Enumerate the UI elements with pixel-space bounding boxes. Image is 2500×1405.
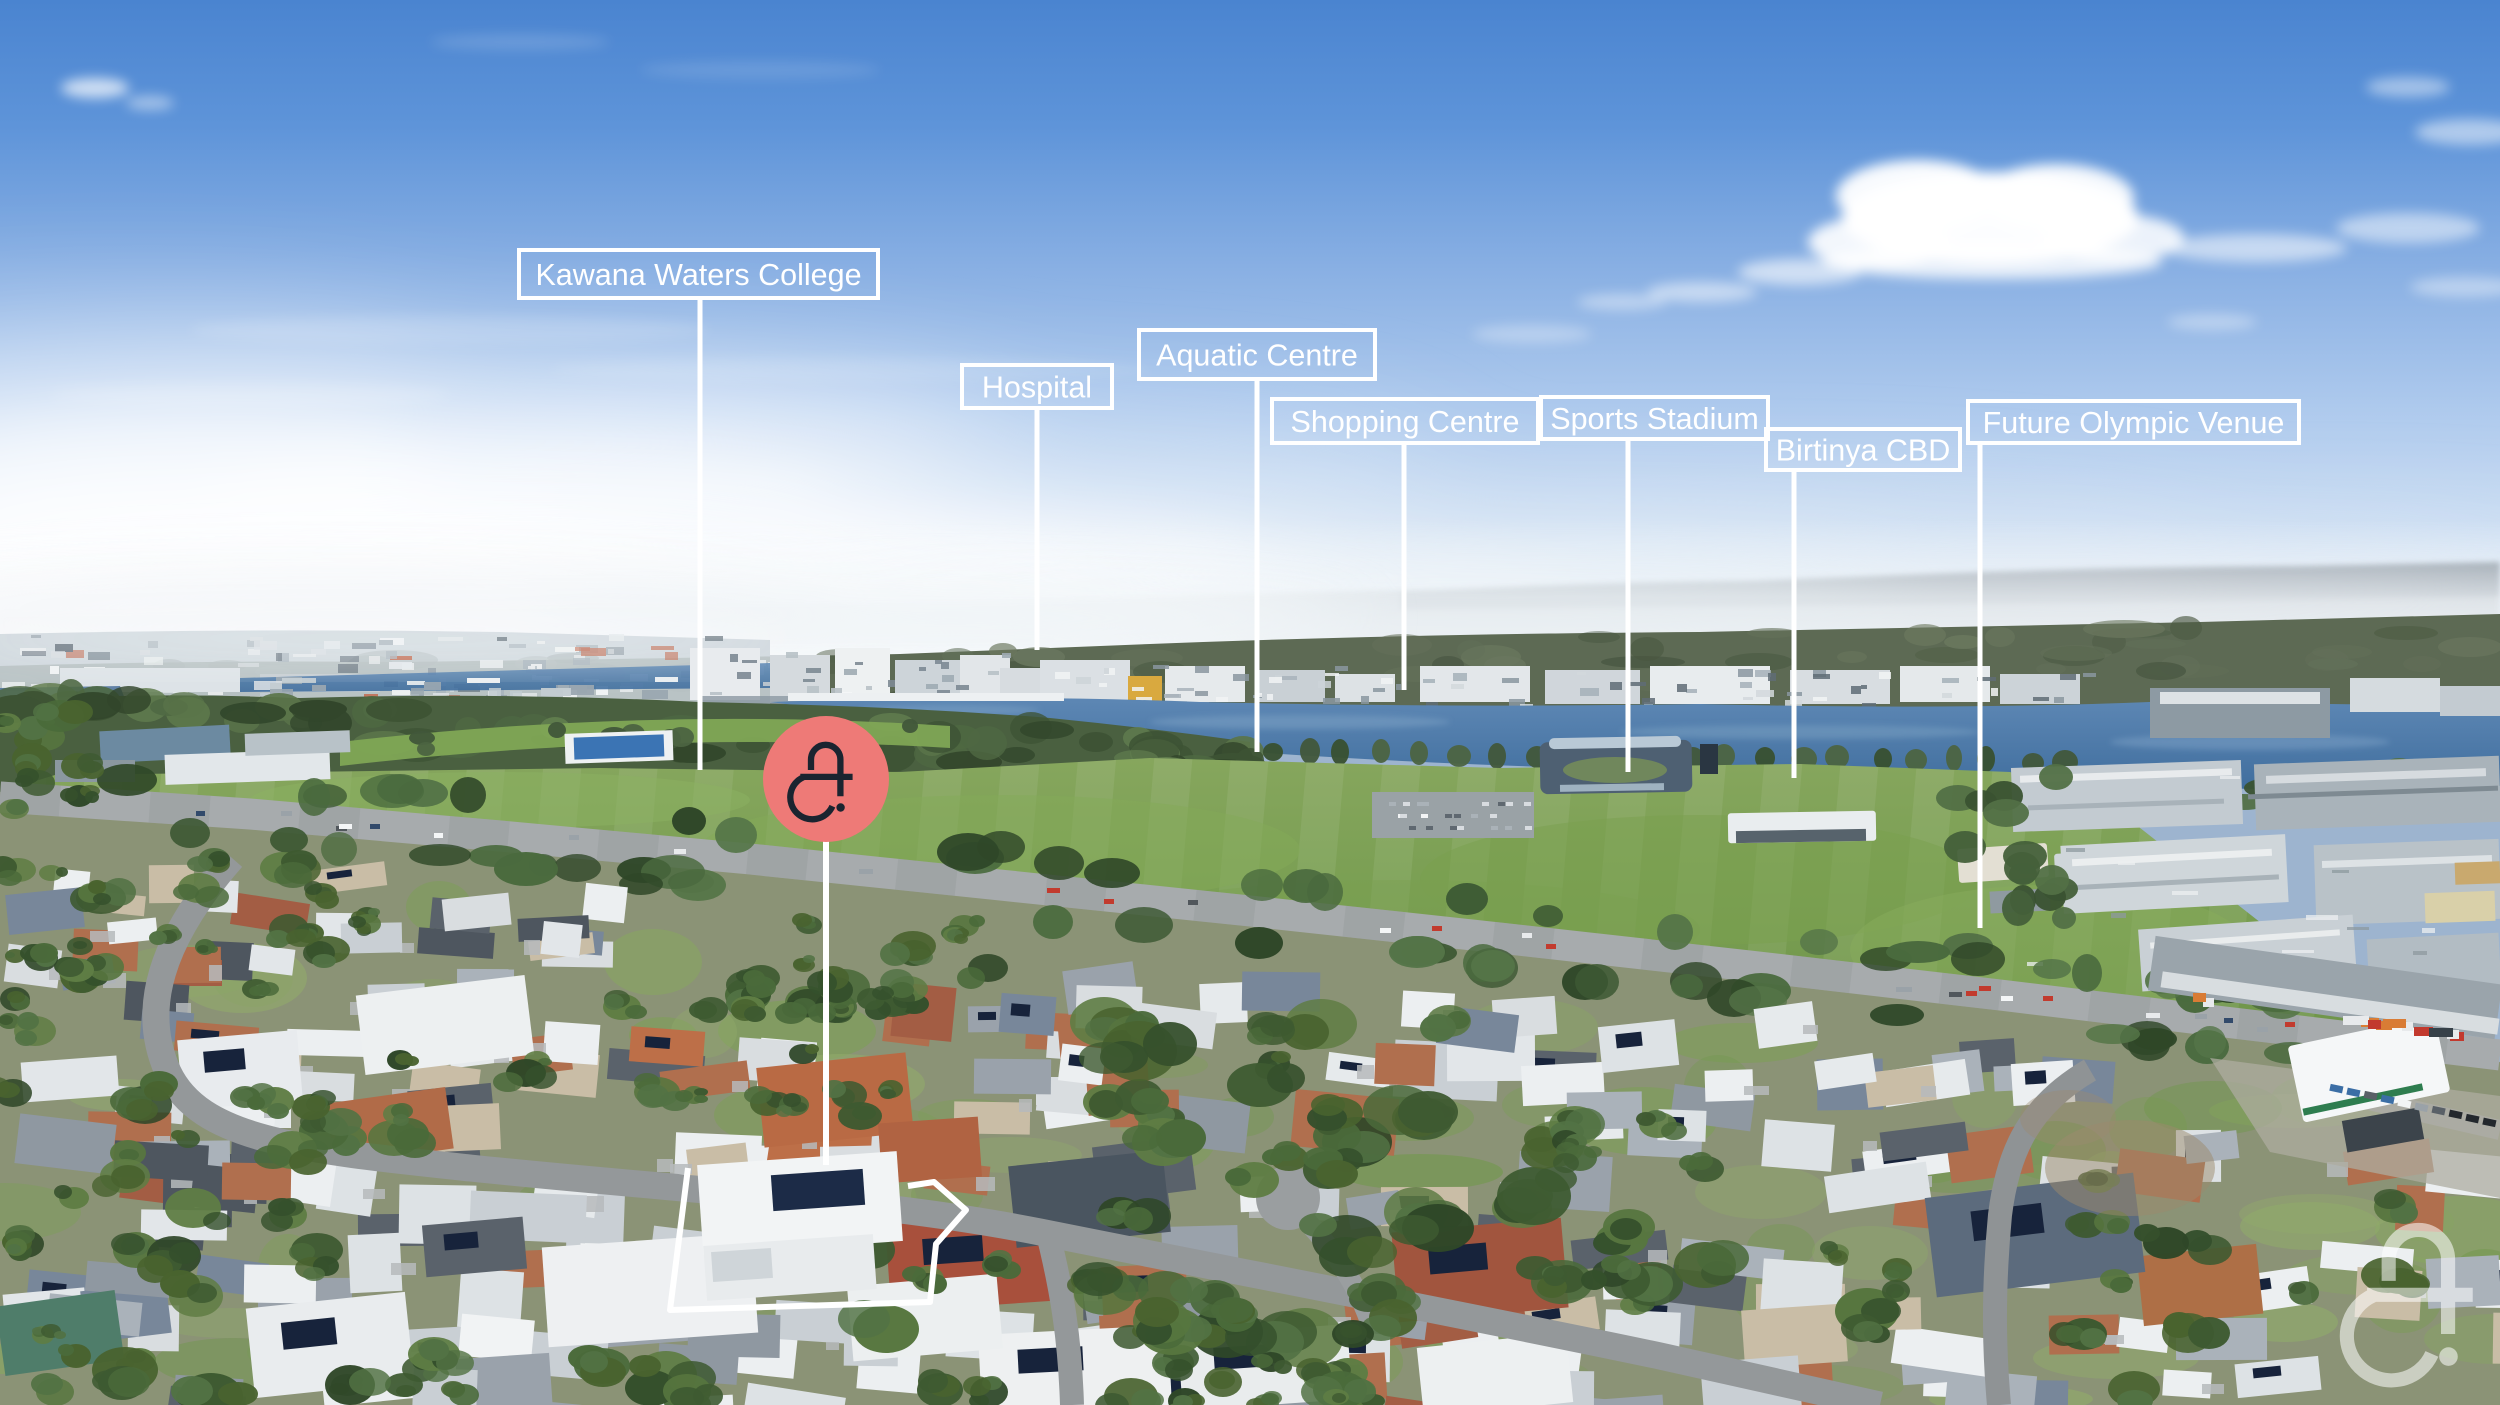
svg-text:Birtinya CBD: Birtinya CBD	[1776, 434, 1951, 468]
svg-text:Shopping Centre: Shopping Centre	[1291, 405, 1520, 439]
svg-text:Kawana Waters College: Kawana Waters College	[535, 258, 861, 292]
svg-text:Aquatic Centre: Aquatic Centre	[1156, 339, 1358, 373]
svg-text:Hospital: Hospital	[982, 371, 1092, 405]
svg-text:Sports Stadium: Sports Stadium	[1550, 402, 1759, 436]
svg-text:Future Olympic Venue: Future Olympic Venue	[1983, 406, 2285, 440]
